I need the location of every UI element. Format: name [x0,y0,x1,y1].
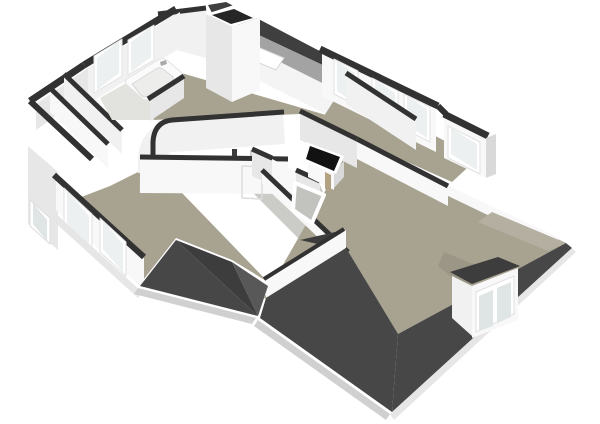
dormer-window-glass-2 [497,282,511,323]
ne-end-wall-face [486,134,496,178]
floorplan-scene [0,0,600,424]
chimney-right-face [232,17,260,102]
dormer-window-glass-1 [479,290,493,331]
door-handle-mark [232,149,237,156]
floorplan-3d-view[interactable] [0,0,600,424]
stair-hatch-post [325,172,331,192]
chimney-left-face [206,14,232,102]
